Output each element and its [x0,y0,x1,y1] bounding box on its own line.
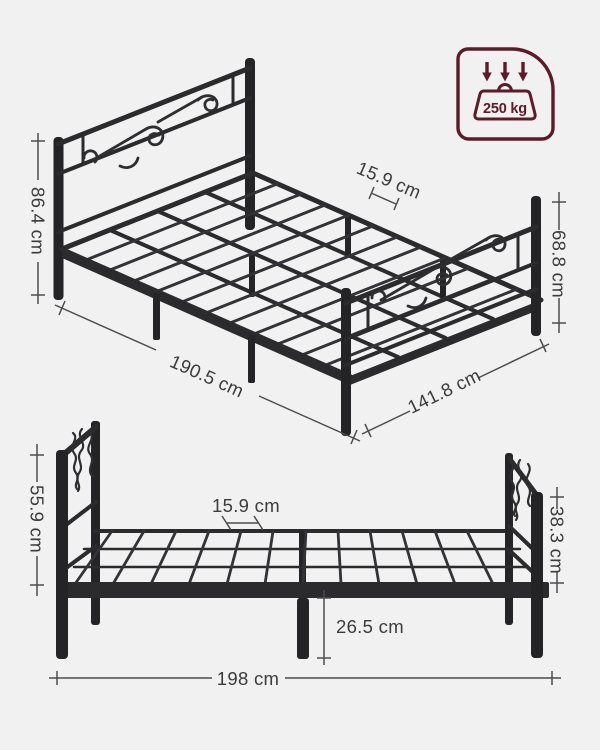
dimension-headboard-height-side: 55.9 cm [27,444,48,596]
dimension-footboard-height-side: 38.3 cm [547,487,568,593]
slat-grid-side [75,531,493,584]
dimension-frame-length: 190.5 cm [55,301,360,444]
dim-label-frame-length-top: 190.5 cm [167,350,247,401]
product-diagram-canvas: 86.4 cm 15.9 cm 68.8 cm 190.5 cm [0,0,600,750]
dimension-under-bed-clearance: 26.5 cm [317,590,404,665]
dim-label-frame-width-top: 141.8 cm [404,364,484,417]
dimension-footboard-height: 68.8 cm [549,192,570,333]
dim-label-slat-spacing-side: 15.9 cm [212,495,280,516]
dim-label-frame-length-side: 198 cm [217,668,279,689]
dimension-headboard-height: 86.4 cm [28,133,49,304]
bed-frame-dimension-diagram: 86.4 cm 15.9 cm 68.8 cm 190.5 cm [0,0,600,750]
dim-label-footboard-height-top: 68.8 cm [549,230,570,298]
max-load-badge: 250 kg [458,49,553,139]
dimension-slat-spacing: 15.9 cm [354,157,425,210]
dimension-annotations-perspective: 86.4 cm 15.9 cm 68.8 cm 190.5 cm [28,133,570,444]
arrow-down-icon [518,62,528,82]
dim-label-footboard-height-side: 38.3 cm [547,506,568,574]
dimension-slat-spacing-side: 15.9 cm [212,495,280,530]
dim-label-headboard-height-top: 86.4 cm [28,187,49,255]
dim-label-slat-spacing-top: 15.9 cm [354,157,425,203]
weight-icon: 250 kg [475,85,535,119]
dim-label-headboard-height-side: 55.9 cm [27,485,48,553]
bed-frame-side-illustration [56,421,549,659]
arrow-down-icon [500,62,510,82]
arrow-down-icon [482,62,492,82]
dimension-frame-length-side: 198 cm [49,668,561,689]
max-load-value: 250 kg [483,101,527,117]
dim-label-under-bed-clearance: 26.5 cm [336,616,404,637]
